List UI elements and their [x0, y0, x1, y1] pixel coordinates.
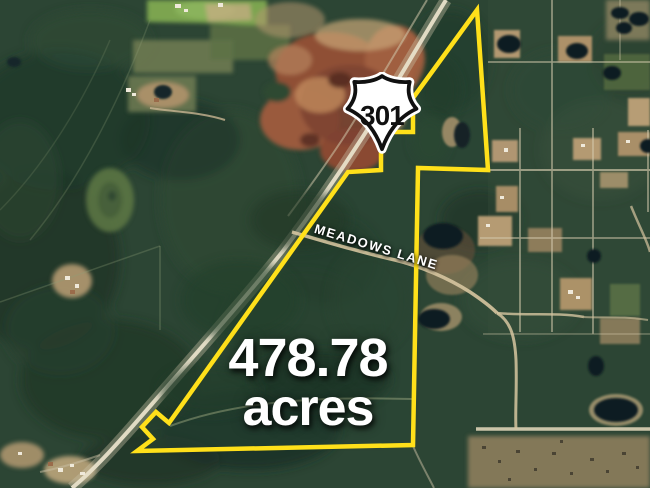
acreage-value: 478.78 — [158, 333, 458, 383]
acreage-unit: acres — [158, 383, 458, 433]
acreage-callout: 478.78 acres — [158, 333, 458, 433]
aerial-property-map: 301 MEADOWS LANE 478.78 acres — [0, 0, 650, 488]
